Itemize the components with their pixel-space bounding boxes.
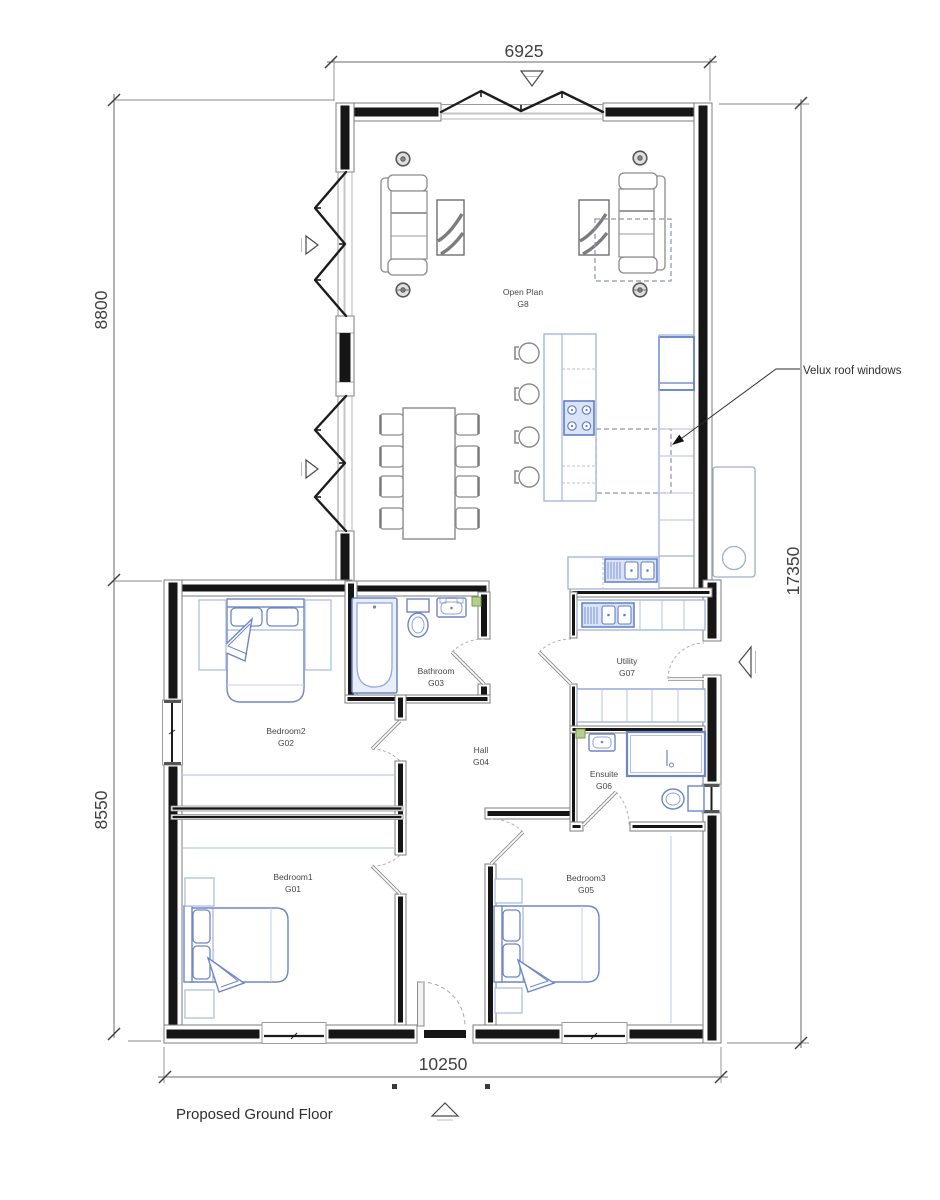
svg-text:Bedroom1: Bedroom1 <box>273 872 312 882</box>
svg-text:G8: G8 <box>517 299 529 309</box>
svg-text:G07: G07 <box>619 668 635 678</box>
svg-text:Ensuite: Ensuite <box>590 769 619 779</box>
svg-text:Proposed Ground Floor: Proposed Ground Floor <box>176 1106 333 1123</box>
svg-text:G02: G02 <box>278 738 294 748</box>
svg-text:G03: G03 <box>428 678 444 688</box>
svg-text:G04: G04 <box>473 757 489 767</box>
svg-text:Bedroom3: Bedroom3 <box>566 873 605 883</box>
svg-text:8550: 8550 <box>91 790 111 829</box>
svg-text:G06: G06 <box>596 781 612 791</box>
svg-text:10250: 10250 <box>419 1054 468 1074</box>
svg-text:Bathroom: Bathroom <box>418 666 455 676</box>
svg-text:17350: 17350 <box>783 546 803 595</box>
svg-text:G05: G05 <box>578 885 594 895</box>
svg-text:Velux roof windows: Velux roof windows <box>803 365 902 377</box>
svg-text:Open Plan: Open Plan <box>503 287 543 297</box>
svg-text:Bedroom2: Bedroom2 <box>266 726 305 736</box>
svg-text:Utility: Utility <box>617 656 639 666</box>
svg-text:6925: 6925 <box>505 41 544 61</box>
svg-text:G01: G01 <box>285 884 301 894</box>
svg-text:Hall: Hall <box>474 745 489 755</box>
svg-text:8800: 8800 <box>91 290 111 329</box>
